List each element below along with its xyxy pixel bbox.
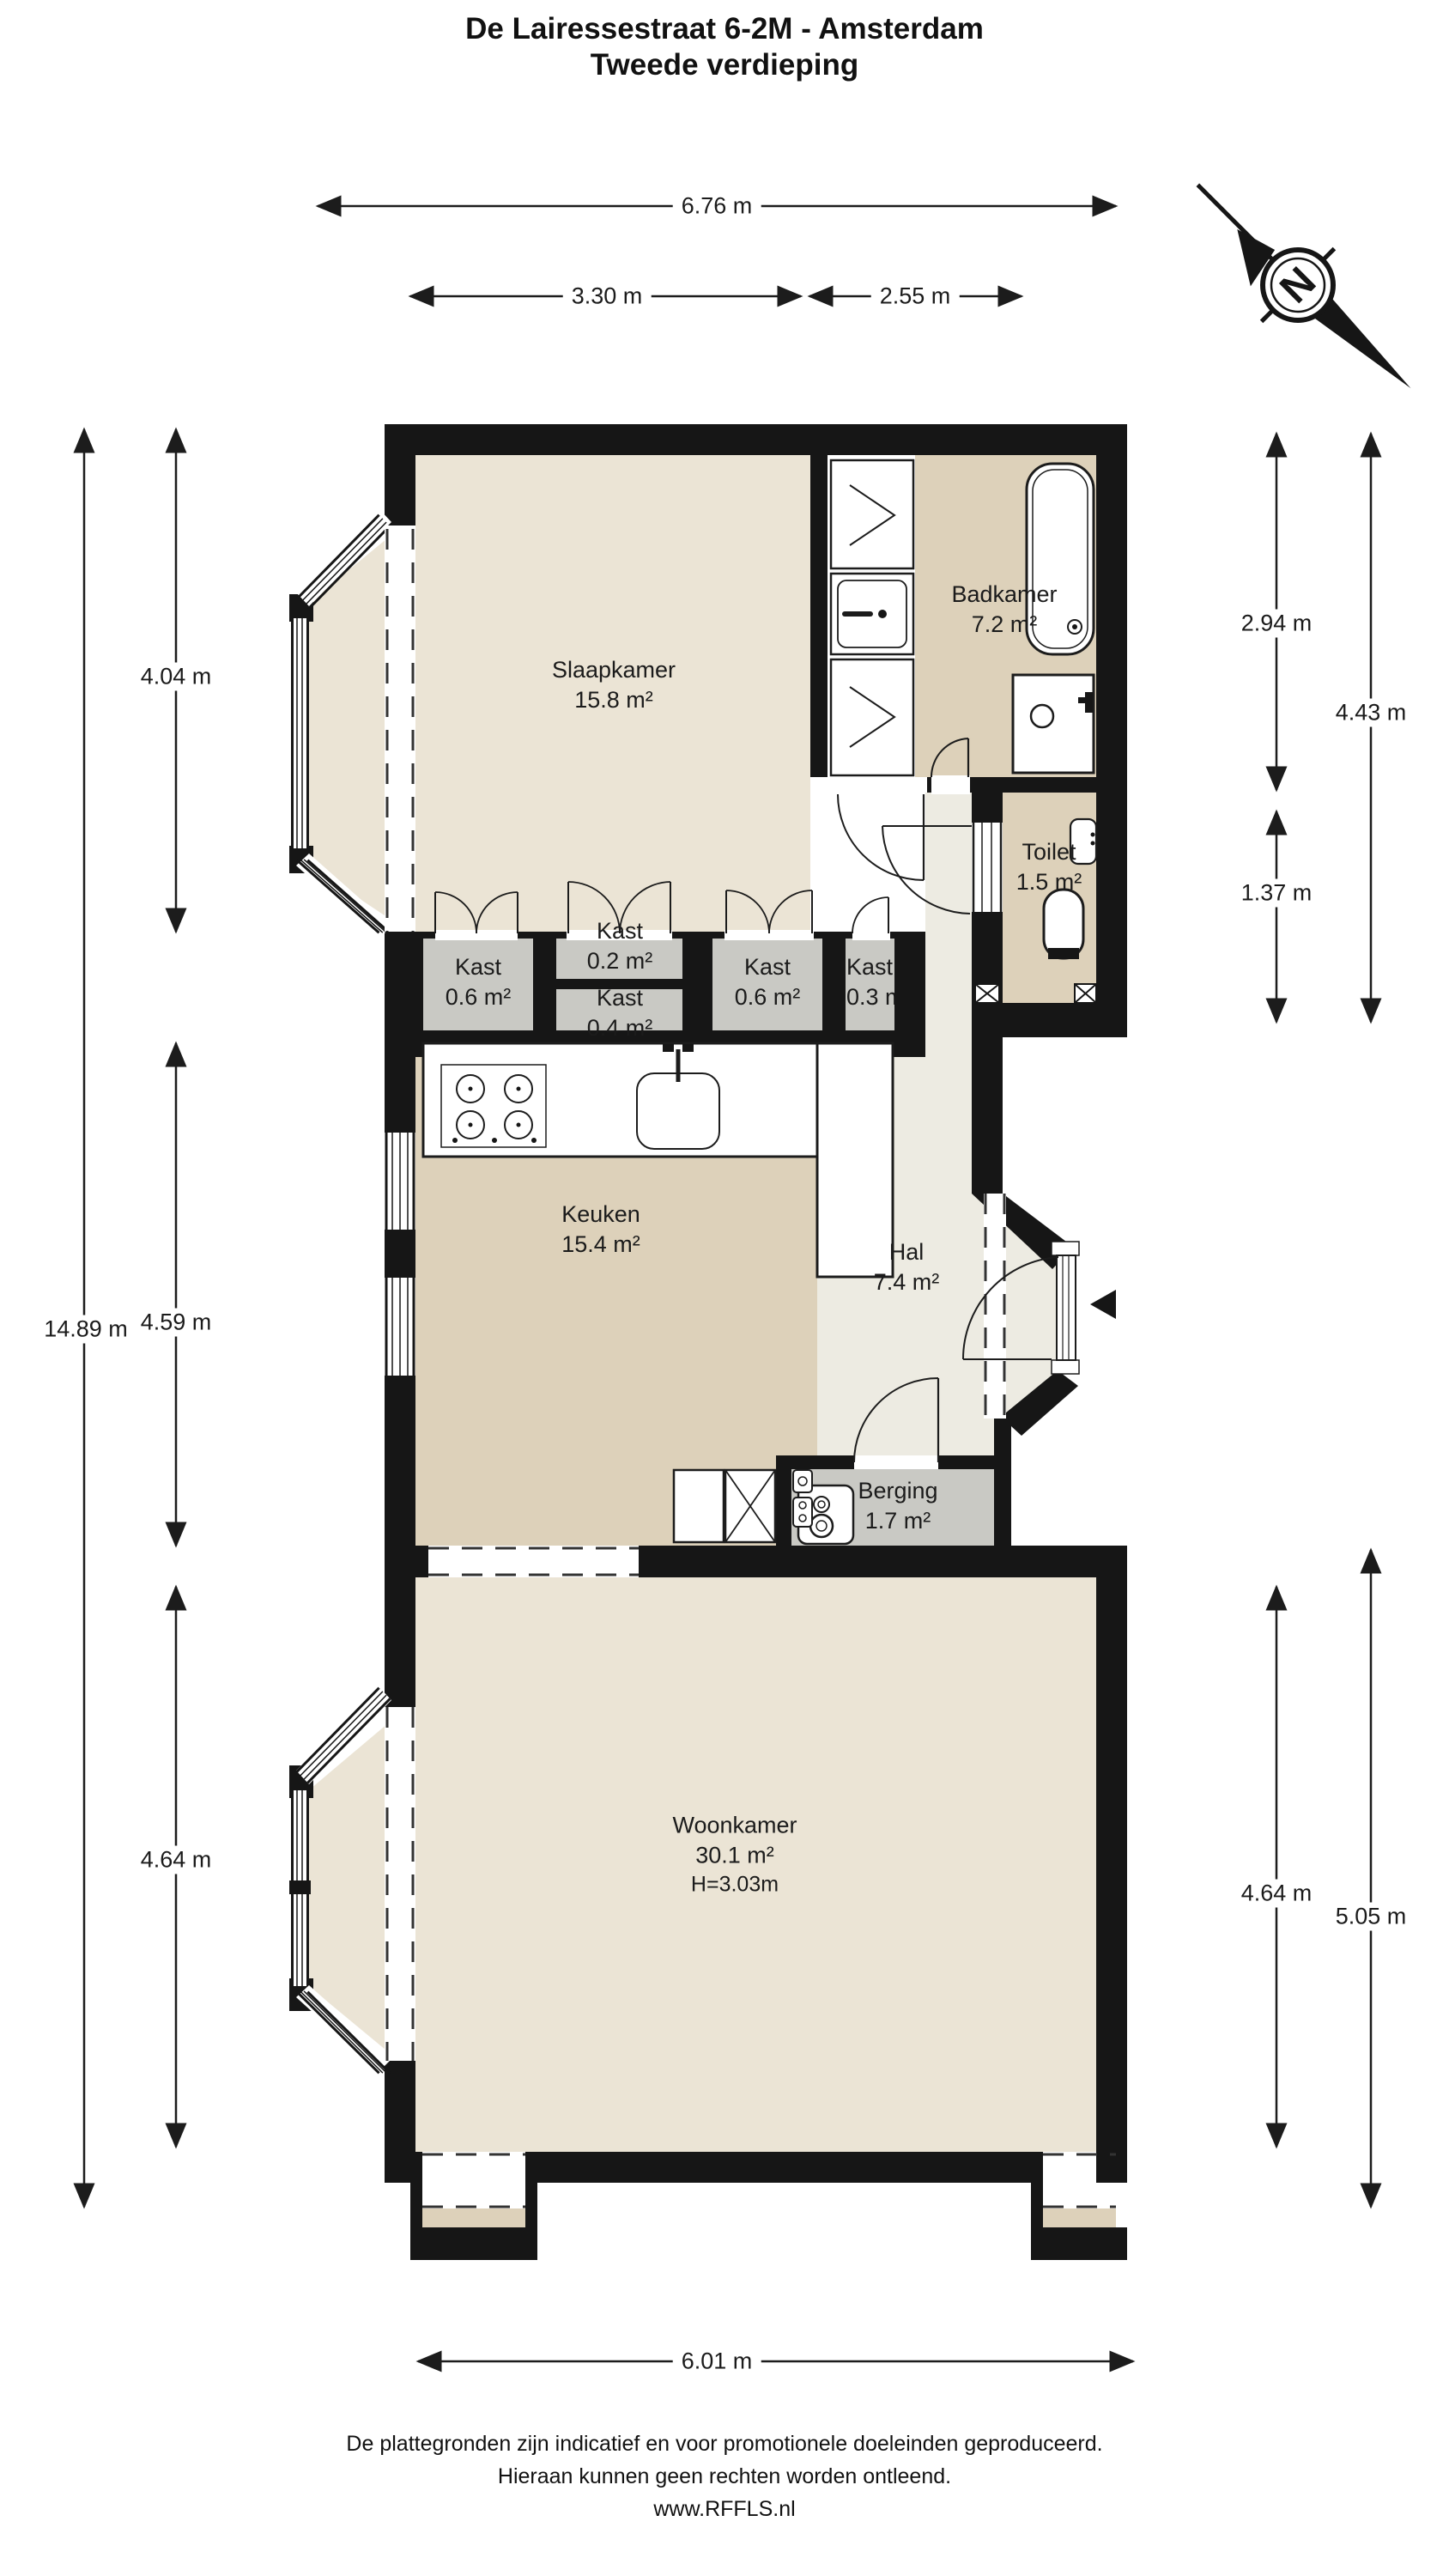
dim-bottom-total: 6.01 m bbox=[673, 2348, 761, 2376]
room-label-badkamer: Badkamer7.2 m² bbox=[951, 580, 1057, 640]
dim-top-total: 6.76 m bbox=[673, 192, 761, 221]
dim-right-toilet: 1.37 m bbox=[1233, 879, 1321, 908]
dim-top-right: 2.55 m bbox=[871, 283, 960, 311]
floorplan-page: De Lairessestraat 6-2M - Amsterdam Tweed… bbox=[0, 0, 1449, 2576]
dim-left-bottom: 4.64 m bbox=[132, 1846, 221, 1874]
compass-rose-icon: N bbox=[1161, 149, 1442, 429]
dim-right-outer-bottom: 5.05 m bbox=[1327, 1903, 1416, 1931]
disclaimer-line-2: Hieraan kunnen geen rechten worden ontle… bbox=[0, 2464, 1449, 2489]
room-label-berging: Berging1.7 m² bbox=[858, 1476, 937, 1536]
dim-right-outer-top: 4.43 m bbox=[1327, 699, 1416, 727]
disclaimer-line-1: De plattegronden zijn indicatief en voor… bbox=[0, 2432, 1449, 2457]
room-label-keuken: Keuken15.4 m² bbox=[561, 1200, 640, 1260]
dim-right-bottom: 4.64 m bbox=[1233, 1880, 1321, 1908]
website-url: www.RFFLS.nl bbox=[0, 2497, 1449, 2522]
floorplan-drawing: N bbox=[0, 0, 1449, 2576]
dim-left-mid: 4.59 m bbox=[132, 1309, 221, 1337]
room-label-kast-e: Kast0.3 m² bbox=[846, 952, 894, 1012]
dim-left-top: 4.04 m bbox=[132, 663, 221, 691]
room-label-toilet: Toilet1.5 m² bbox=[1016, 837, 1082, 897]
dim-left-total: 14.89 m bbox=[35, 1315, 136, 1344]
room-label-slaapkamer: Slaapkamer15.8 m² bbox=[552, 655, 676, 715]
room-label-woonkamer: Woonkamer 30.1 m² H=3.03m bbox=[672, 1811, 797, 1899]
room-label-kast-b: Kast0.2 m² bbox=[587, 916, 653, 976]
dim-top-left: 3.30 m bbox=[563, 283, 652, 311]
room-label-kast-c: Kast0.4 m² bbox=[587, 983, 653, 1043]
room-label-hal: Hal7.4 m² bbox=[874, 1237, 940, 1297]
room-label-kast-d: Kast0.6 m² bbox=[735, 952, 801, 1012]
room-label-kast-a: Kast0.6 m² bbox=[446, 952, 512, 1012]
dim-right-top: 2.94 m bbox=[1233, 610, 1321, 638]
